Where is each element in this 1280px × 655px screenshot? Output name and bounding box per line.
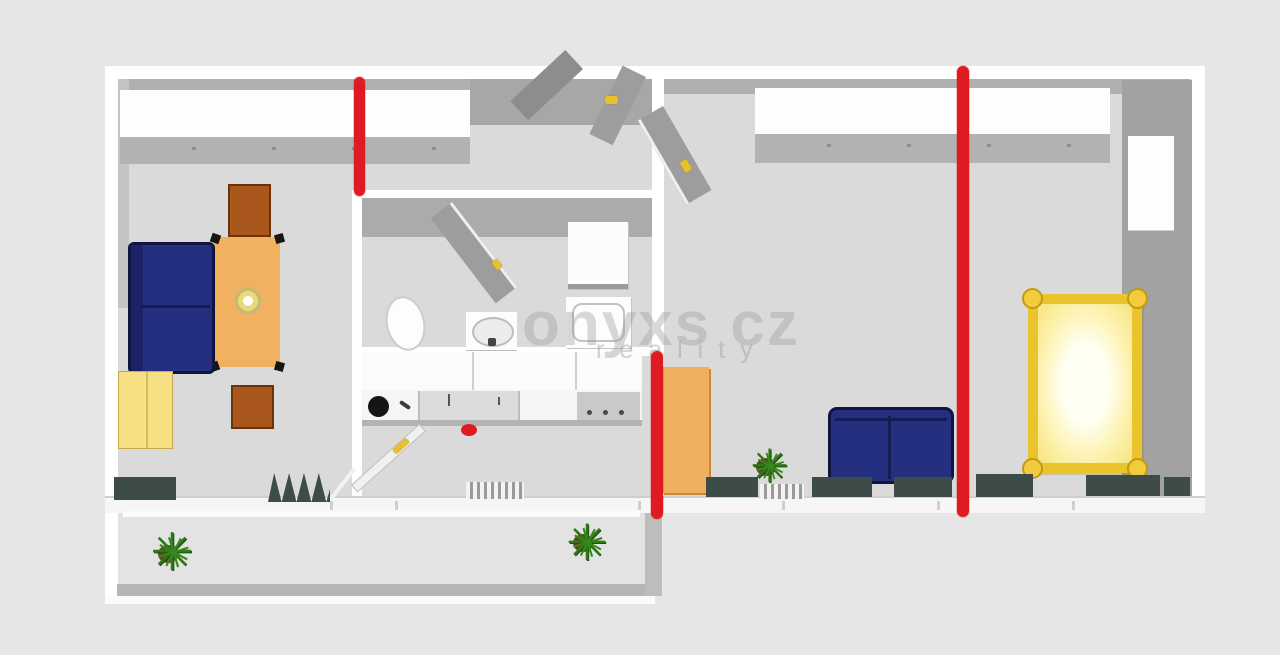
radiator-right-room <box>812 477 872 497</box>
wardrobe-right-front <box>755 134 1110 163</box>
wardrobe-handles <box>134 147 456 150</box>
radiator-kitchen <box>466 482 524 499</box>
cabinet-door-split <box>146 372 148 448</box>
floorplan-canvas: ✳ ✳ ✳ ✳ ✳ ✳ onyxs cz reality <box>0 0 1280 655</box>
sofa-cushion-split <box>141 305 210 308</box>
radiator-right-room-finned <box>760 484 804 499</box>
radiator-right-room <box>894 477 952 497</box>
balcony-wall-bottom-outer <box>105 596 655 604</box>
annotation-red-dot <box>461 424 477 436</box>
cabinet-yellow <box>118 371 173 449</box>
bathroom-wall-top <box>352 190 654 198</box>
cooktop-mark <box>498 397 500 405</box>
sofa-cushion-split <box>888 416 891 479</box>
entrance-door-handle <box>605 96 618 104</box>
window-pane-divider <box>1072 501 1075 510</box>
cabinet-orange <box>662 367 709 493</box>
cooktop-mark <box>448 394 450 406</box>
window-pane-divider <box>937 501 940 510</box>
wardrobe-right-top <box>755 88 1110 134</box>
wardrobe-left-top <box>120 90 470 137</box>
kitchen-stove <box>577 392 640 421</box>
window-wall-right-unit <box>652 496 1205 513</box>
chair-brown <box>231 385 274 429</box>
outer-wall-left <box>105 66 118 602</box>
plant-balcony-right: ✳ ✳ <box>558 518 616 570</box>
bed-post <box>1127 288 1148 309</box>
window-pane-divider <box>638 501 641 510</box>
bed <box>1028 294 1142 473</box>
sofa-right-room <box>828 407 954 484</box>
washbasin <box>466 312 517 350</box>
annotation-red-line-right <box>957 66 969 517</box>
sofa-backrest <box>131 245 143 371</box>
watermark-subtitle: reality <box>596 336 768 365</box>
table-centerpiece <box>233 285 263 317</box>
stove-knob <box>587 410 592 415</box>
outer-wall-right <box>1192 66 1205 513</box>
radiator-left-room <box>114 477 176 500</box>
balcony-wall-right <box>645 513 662 596</box>
wardrobe-left-front <box>120 137 470 164</box>
kitchen-sink-bowl <box>368 396 389 417</box>
water-heater <box>568 222 628 289</box>
annotation-red-line-left <box>354 77 365 196</box>
washbasin-tap <box>488 338 496 346</box>
annotation-red-line-middle <box>651 351 663 519</box>
window-pane-divider <box>395 501 398 510</box>
kitchen-cooktop <box>418 391 520 420</box>
radiator-right-room <box>976 474 1033 497</box>
radiator-right-room <box>706 477 758 497</box>
radiator-right-room <box>1164 477 1190 496</box>
sofa-left-room <box>128 242 215 374</box>
bed-post <box>1022 288 1043 309</box>
wardrobe-handles <box>769 144 1096 147</box>
plant-balcony-left: ✳ ✳ <box>143 527 201 583</box>
stove-knob <box>603 410 608 415</box>
radiator-right-room <box>1086 475 1160 496</box>
stove-knob <box>619 410 624 415</box>
balcony-wall-bottom <box>117 584 645 596</box>
built-in-cupboard <box>1128 136 1174 230</box>
window-pane-divider <box>330 501 333 510</box>
cabinet-seam <box>472 352 474 390</box>
side-table-top <box>228 184 271 237</box>
window-pane-divider <box>782 501 785 510</box>
counter-front-edge <box>362 420 642 426</box>
dining-table <box>214 237 280 367</box>
balcony-sill <box>123 511 640 517</box>
sofa-armrest-line <box>835 418 947 421</box>
